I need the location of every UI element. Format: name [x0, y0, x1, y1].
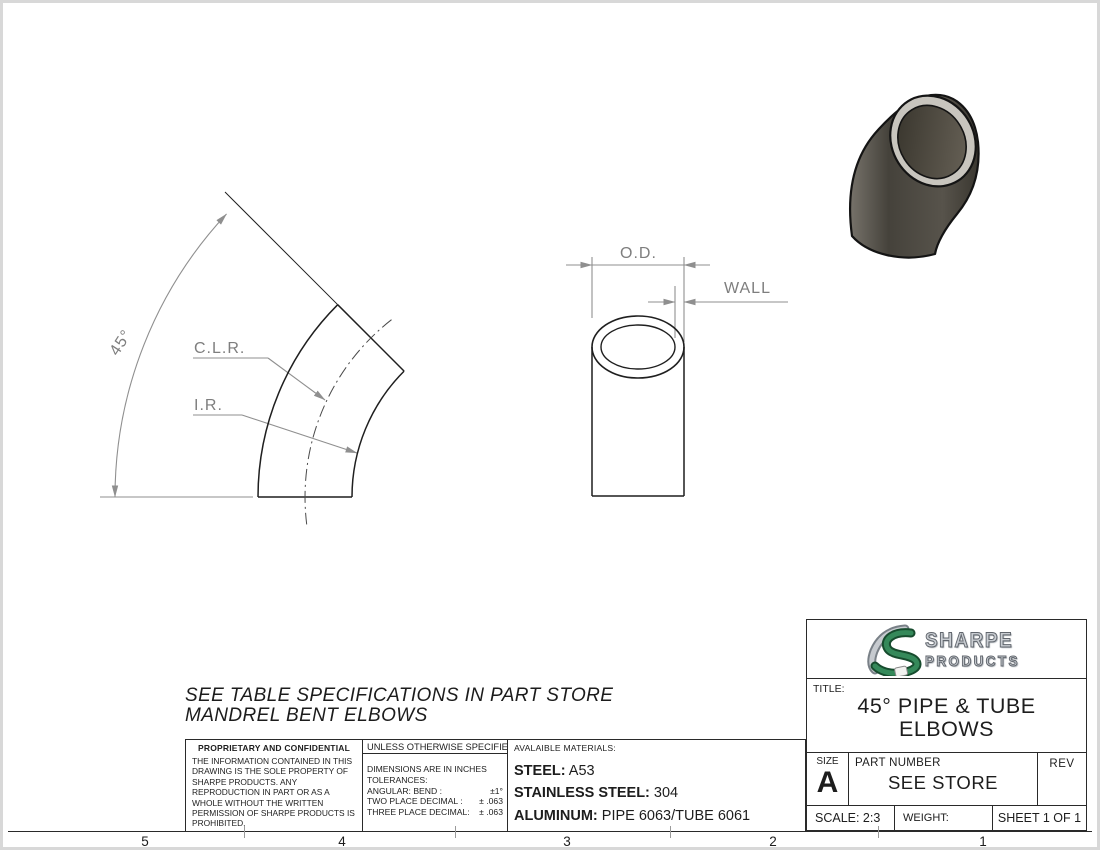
tolerance-row: THREE PLACE DECIMAL: ± .063: [367, 807, 503, 818]
proprietary-title: PROPRIETARY AND CONFIDENTIAL: [192, 743, 356, 753]
material-value: PIPE 6063/TUBE 6061: [602, 808, 750, 824]
part-number-cell: PART NUMBER SEE STORE: [848, 753, 1038, 805]
note-line-1: SEE TABLE SPECIFICATIONS IN PART STORE: [185, 686, 613, 706]
materials-block: AVALAIBLE MATERIALS: STEEL: A53 STAINLES…: [507, 739, 806, 832]
tolerance-row: ANGULAR: BEND : ±1°: [367, 786, 503, 797]
weight-cell: WEIGHT:: [894, 806, 993, 830]
zone-tick: [244, 826, 245, 838]
elbow-bend-view: [100, 192, 404, 524]
zone-number: 3: [563, 834, 571, 849]
tolerance-value: ± .063: [479, 796, 503, 807]
material-label: STAINLESS STEEL:: [514, 785, 650, 801]
tolerance-value: ± .063: [479, 807, 503, 818]
centerline-radius-label: C.L.R.: [194, 340, 245, 358]
zone-tick: [670, 826, 671, 838]
tolerances-body: DIMENSIONS ARE IN INCHES TOLERANCES: ANG…: [363, 754, 507, 818]
part-number-value: SEE STORE: [849, 772, 1037, 794]
tolerances-header: UNLESS OTHERWISE SPECIFIED:: [363, 740, 507, 754]
rev-cell: REV: [1038, 753, 1086, 805]
rev-label: REV: [1038, 758, 1086, 770]
part-number-label: PART NUMBER: [855, 757, 941, 769]
size-cell: SIZE A: [807, 753, 848, 805]
size-partnumber-rev-row: SIZE A PART NUMBER SEE STORE REV: [807, 752, 1086, 805]
tolerance-row: TWO PLACE DECIMAL : ± .063: [367, 796, 503, 807]
sheet-cell: SHEET 1 OF 1: [993, 806, 1086, 830]
sheet-border-line: [8, 831, 1092, 832]
proprietary-body: THE INFORMATION CONTAINED IN THIS DRAWIN…: [192, 756, 356, 829]
zone-number: 4: [338, 834, 346, 849]
material-row: STAINLESS STEEL: 304: [514, 782, 805, 804]
materials-header: AVALAIBLE MATERIALS:: [508, 740, 805, 753]
proprietary-block: PROPRIETARY AND CONFIDENTIAL THE INFORMA…: [185, 739, 363, 832]
logo-cell: SHARPE PRODUCTS: [807, 620, 1086, 678]
material-value: A53: [569, 763, 595, 779]
logo-line-sharpe: SHARPE: [925, 630, 1020, 651]
zone-number: 1: [979, 834, 987, 849]
drawing-title-line-2: ELBOWS: [807, 718, 1086, 741]
note-line-2: MANDREL BENT ELBOWS: [185, 706, 613, 726]
scale-cell: SCALE: 2:3: [807, 806, 894, 830]
drawing-title-line-1: 45° PIPE & TUBE: [807, 695, 1086, 718]
title-block: SHARPE PRODUCTS TITLE: 45° PIPE & TUBE E…: [806, 619, 1087, 831]
logo-line-products: PRODUCTS: [925, 654, 1020, 669]
drawing-sheet: { "zones": { "labels": ["5", "4", "3", "…: [0, 0, 1100, 850]
tolerance-label: THREE PLACE DECIMAL:: [367, 807, 470, 818]
zone-number: 2: [769, 834, 777, 849]
size-value: A: [807, 767, 848, 799]
zone-tick: [455, 826, 456, 838]
outer-diameter-label: O.D.: [620, 245, 657, 263]
sharpe-logo-icon: [847, 624, 922, 676]
tolerances-subheader: TOLERANCES:: [367, 775, 503, 786]
tolerance-label: TWO PLACE DECIMAL :: [367, 796, 463, 807]
zone-tick: [878, 826, 879, 838]
title-label: TITLE:: [813, 683, 845, 695]
material-label: STEEL:: [514, 763, 566, 779]
scale-weight-sheet-row: SCALE: 2:3 WEIGHT: SHEET 1 OF 1: [807, 805, 1086, 830]
sharpe-logo-text: SHARPE PRODUCTS: [925, 630, 1020, 669]
materials-list: STEEL: A53 STAINLESS STEEL: 304 ALUMINUM…: [508, 753, 805, 827]
title-cell: TITLE: 45° PIPE & TUBE ELBOWS: [807, 678, 1086, 752]
wall-thickness-label: WALL: [724, 280, 771, 298]
tolerances-block: UNLESS OTHERWISE SPECIFIED: DIMENSIONS A…: [362, 739, 508, 832]
zone-number: 5: [141, 834, 149, 849]
tolerance-value: ±1°: [490, 786, 503, 797]
tolerances-units-line: DIMENSIONS ARE IN INCHES: [367, 764, 503, 775]
material-value: 304: [654, 785, 678, 801]
drawing-note: SEE TABLE SPECIFICATIONS IN PART STORE M…: [185, 686, 613, 726]
material-row: STEEL: A53: [514, 760, 805, 782]
material-label: ALUMINUM:: [514, 808, 598, 824]
inner-radius-label: I.R.: [194, 397, 223, 415]
tolerance-label: ANGULAR: BEND :: [367, 786, 442, 797]
elbow-3d-render: [850, 79, 993, 257]
material-row: ALUMINUM: PIPE 6063/TUBE 6061: [514, 805, 805, 827]
